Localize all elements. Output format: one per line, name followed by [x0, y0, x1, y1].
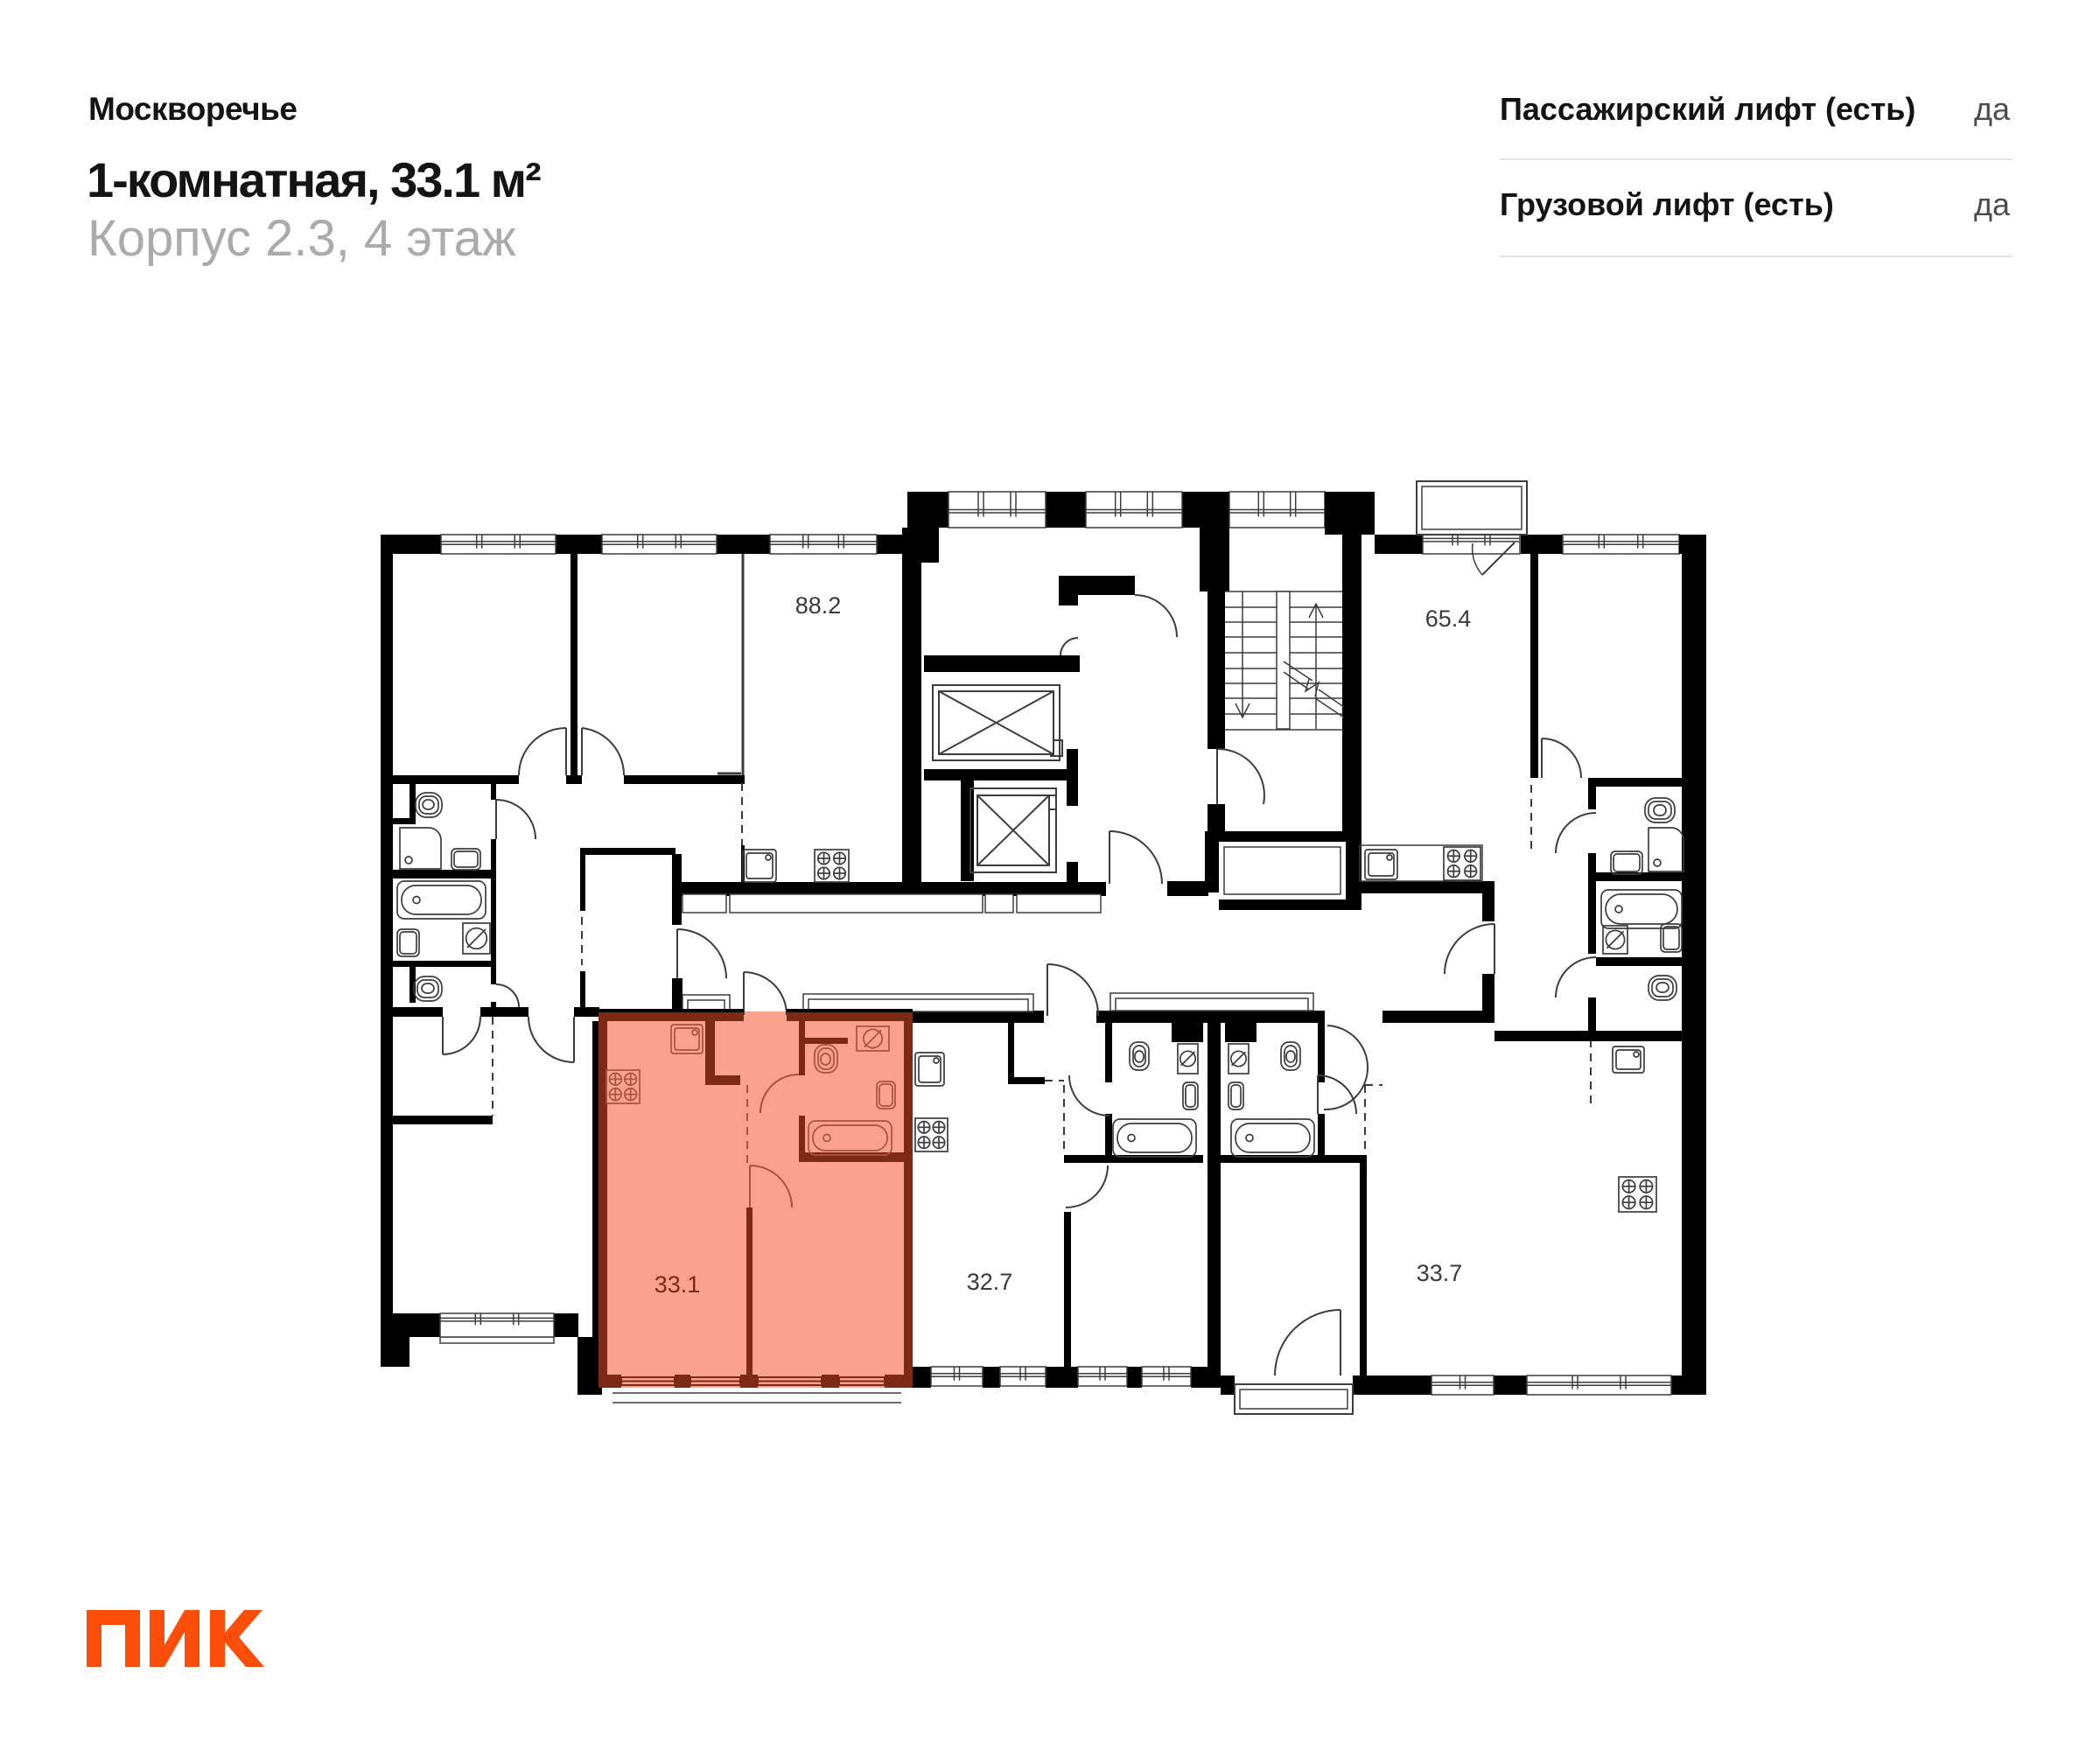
svg-text:32.7: 32.7: [967, 1269, 1013, 1295]
svg-text:33.7: 33.7: [1417, 1260, 1463, 1286]
svg-text:65.4: 65.4: [1425, 605, 1472, 632]
svg-text:88.2: 88.2: [795, 592, 842, 619]
svg-text:33.1: 33.1: [654, 1271, 701, 1298]
